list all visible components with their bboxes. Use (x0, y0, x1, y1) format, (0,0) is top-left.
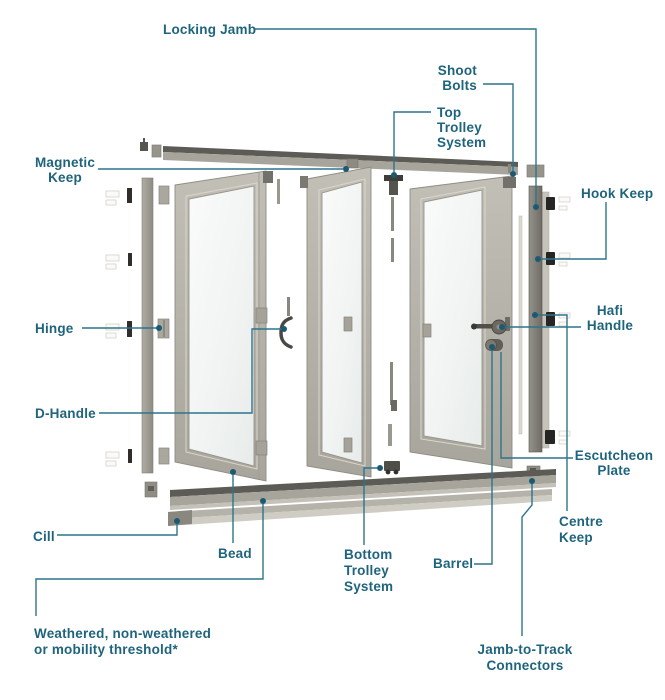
ghost-keeps-right (559, 197, 570, 444)
dot-threshold (260, 498, 266, 504)
magnetic-keep-pin (143, 138, 145, 143)
label-cill-text: Cill (33, 529, 55, 544)
dot-hook-keep (535, 256, 541, 262)
dot-centre-keep (532, 312, 538, 318)
label-bottom-trolley-system: Bottom Trolley System (344, 547, 393, 595)
locking-jamb-face (529, 186, 542, 452)
leader-shoot-bolts (483, 84, 513, 171)
door-panel-1 (175, 171, 266, 481)
label-shoot-bolts-line1: Shoot (420, 63, 477, 78)
shoot-bolt-hook (391, 400, 397, 411)
label-hinge-text: Hinge (35, 321, 74, 336)
leader-jamb-to-track (522, 484, 532, 636)
door2-glass (322, 182, 362, 463)
label-magnetic-keep-line2: Keep (25, 170, 105, 185)
dot-barrel (489, 344, 495, 350)
label-hook-keep-text: Hook Keep (581, 186, 653, 201)
label-hook-keep: Hook Keep (581, 186, 653, 201)
label-hinge: Hinge (35, 321, 74, 336)
label-escutcheon-line1: Escutcheon (564, 448, 664, 463)
label-top-trolley-line1: Top (437, 105, 486, 120)
shoot-bolt-pin-door3 (508, 164, 511, 173)
label-barrel: Barrel (433, 556, 473, 571)
hafi-handle-tip (471, 324, 477, 330)
dot-cill (174, 518, 180, 524)
dot-top-trolley (391, 172, 397, 178)
door-exploded-diagram (0, 0, 665, 700)
door1-glass (189, 186, 254, 466)
shoot-bolt-door3 (503, 177, 516, 188)
label-locking-jamb: Locking Jamb (163, 22, 256, 37)
dot-bottom-trolley (377, 465, 383, 471)
top-trolley-body (389, 181, 398, 195)
label-bead: Bead (218, 546, 252, 561)
label-top-trolley-line2: Trolley (437, 120, 486, 135)
bottom-trolley-wheel-2 (394, 470, 399, 475)
label-hafi-handle-line1: Hafi (574, 303, 646, 318)
diagram-page: Locking Jamb Shoot Bolts Top Trolley Sys… (0, 0, 665, 700)
label-barrel-text: Barrel (433, 556, 473, 571)
label-locking-jamb-text: Locking Jamb (163, 22, 256, 37)
label-bottom-trolley-line1: Bottom (344, 547, 393, 563)
lock-rod (519, 216, 522, 434)
shoot-bolt-keep-door1 (263, 171, 273, 183)
dot-hafi-handle (499, 324, 505, 330)
track-end-cap-left (152, 145, 161, 157)
dot-shoot-bolts (510, 171, 516, 177)
dot-jamb-to-track (529, 478, 535, 484)
label-centre-keep: Centre Keep (559, 514, 603, 546)
label-d-handle-text: D-Handle (35, 406, 96, 421)
shoot-bolt-rod-top (277, 179, 280, 204)
door3-glass (424, 190, 482, 446)
label-magnetic-keep-line1: Magnetic (25, 155, 105, 170)
dot-magnetic-keep (343, 166, 349, 172)
dot-bead (230, 469, 236, 475)
magnetic-keep-part (140, 142, 148, 151)
trolley-pin-2 (391, 238, 394, 262)
label-top-trolley-line3: System (437, 135, 486, 150)
door2-corner-bracket (300, 176, 308, 188)
left-jamb (142, 178, 153, 473)
trolley-pin-1 (391, 197, 394, 231)
magnetic-keep-target (347, 159, 358, 168)
left-jamb-group (106, 178, 169, 497)
label-top-trolley-system: Top Trolley System (437, 105, 486, 150)
label-centre-keep-line1: Centre (559, 514, 603, 530)
label-jamb-to-track-line1: Jamb-to-Track (458, 642, 592, 658)
label-bottom-trolley-line3: System (344, 579, 393, 595)
label-bead-text: Bead (218, 546, 252, 561)
bottom-trolley-wheel-1 (386, 470, 391, 475)
keep-bars-left (127, 188, 132, 463)
label-cill: Cill (33, 529, 55, 544)
label-jamb-to-track-connectors: Jamb-to-Track Connectors (458, 642, 592, 674)
label-escutcheon-plate: Escutcheon Plate (564, 448, 664, 478)
leader-hook-keep (541, 202, 606, 259)
drop-bolt (388, 424, 392, 446)
d-handle-rod (287, 297, 290, 316)
bottom-trolley-body (384, 461, 400, 471)
cill-end-cap (168, 510, 192, 526)
connector-notch (148, 486, 154, 491)
label-shoot-bolts-line2: Bolts (420, 78, 477, 93)
label-jamb-to-track-line2: Connectors (458, 658, 592, 674)
label-centre-keep-line2: Keep (559, 530, 603, 546)
d-handle-part (281, 318, 291, 347)
label-threshold-line1: Weathered, non-weathered (34, 626, 211, 642)
label-threshold: Weathered, non-weathered or mobility thr… (34, 626, 211, 658)
locking-jamb-group (527, 186, 570, 476)
label-bottom-trolley-line2: Trolley (344, 563, 393, 579)
label-hafi-handle: Hafi Handle (574, 303, 646, 333)
door-panel-2 (307, 167, 371, 477)
dot-hinge (156, 325, 162, 331)
leader-cill (57, 524, 177, 535)
label-threshold-line2: or mobility threshold* (34, 642, 211, 658)
label-shoot-bolts: Shoot Bolts (420, 63, 477, 93)
label-hafi-handle-line2: Handle (574, 318, 646, 333)
shoot-bolt-rod-lower (390, 362, 393, 405)
dot-locking-jamb (533, 204, 539, 210)
dot-d-handle (281, 326, 287, 332)
label-escutcheon-line2: Plate (564, 463, 664, 478)
label-d-handle: D-Handle (35, 406, 96, 421)
label-magnetic-keep: Magnetic Keep (25, 155, 105, 185)
